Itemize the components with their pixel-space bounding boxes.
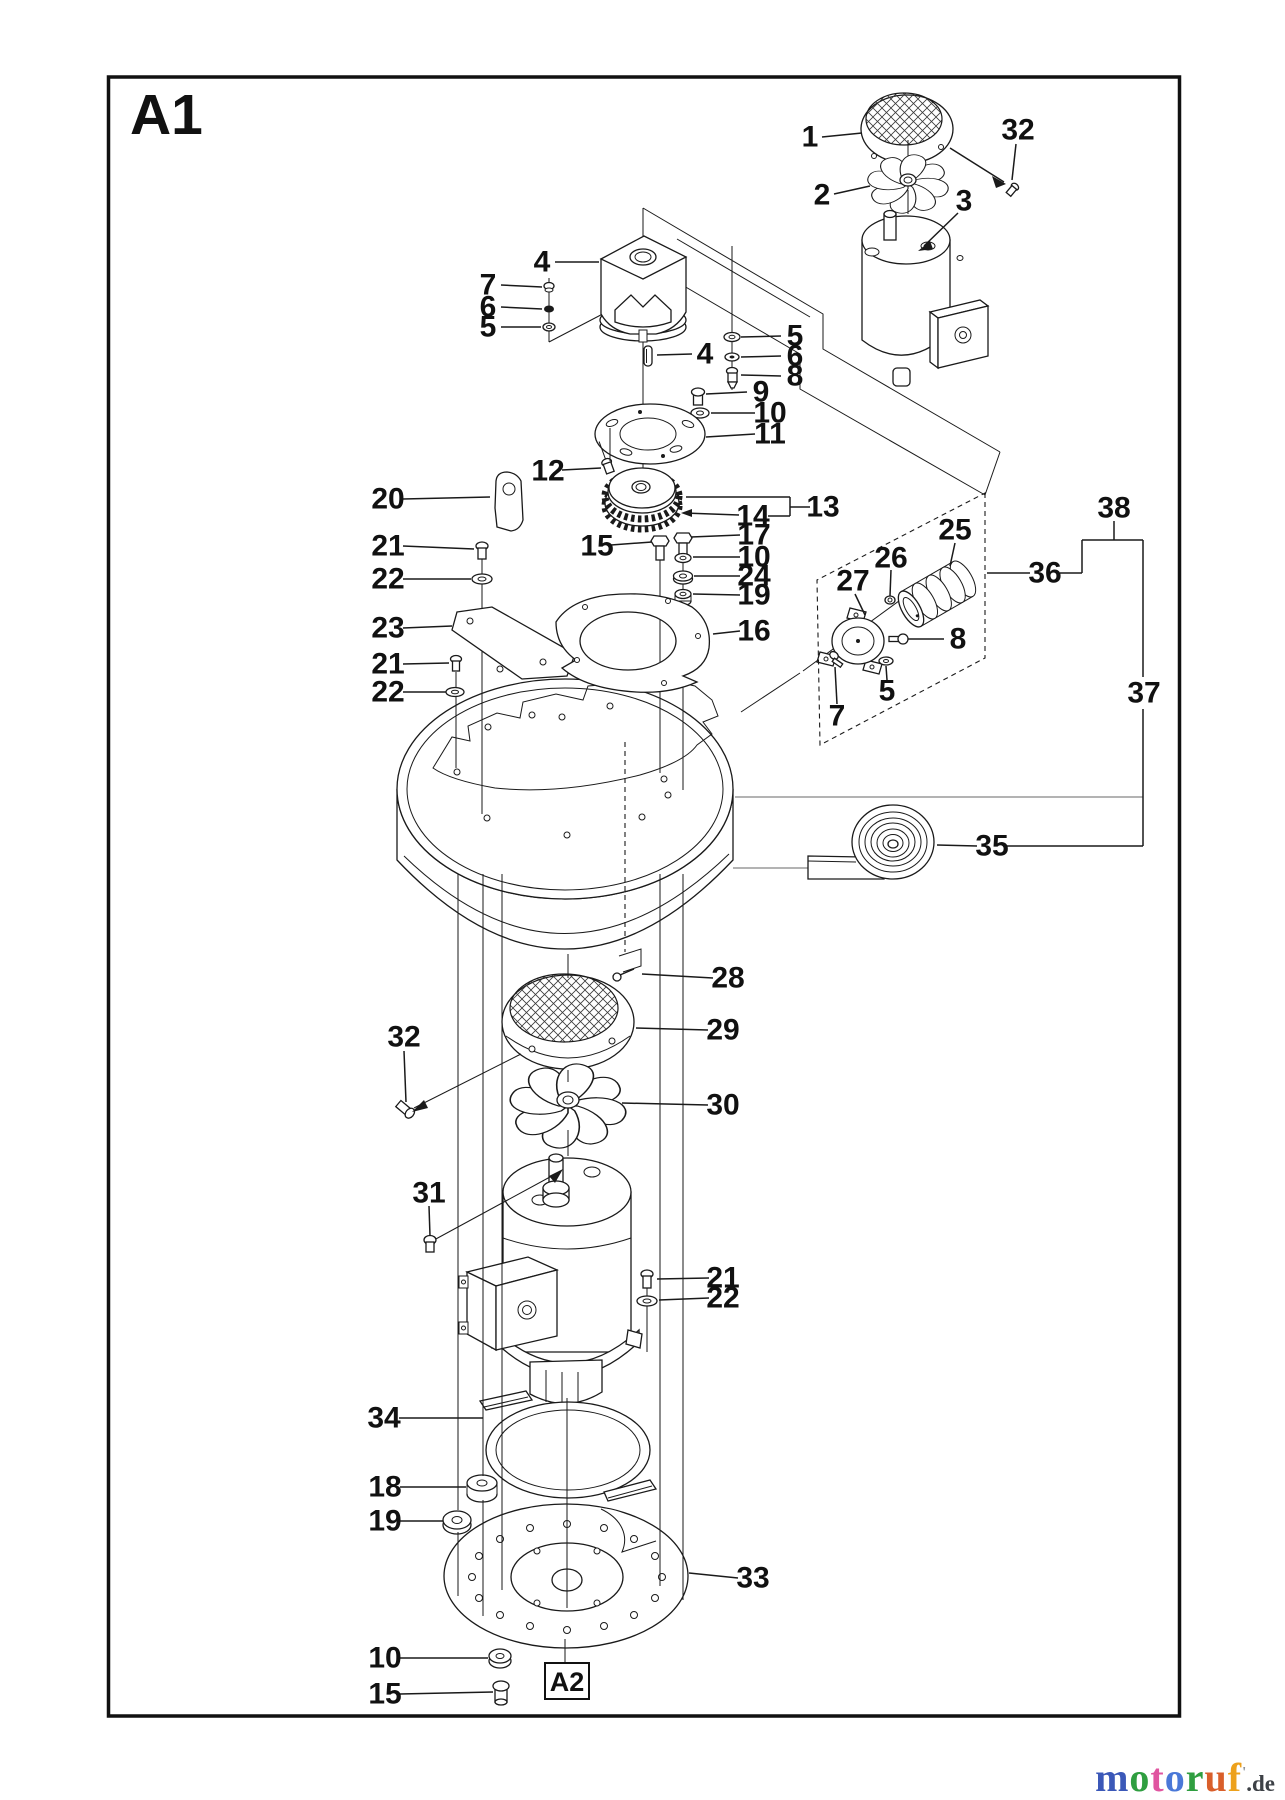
callout-27: 27 [836, 565, 869, 616]
part-guard-plate [556, 594, 709, 692]
svg-text:4: 4 [534, 246, 551, 279]
part-clutch-bracket [817, 608, 884, 674]
svg-text:5: 5 [879, 675, 896, 708]
callout-29: 29 [636, 1014, 740, 1047]
part-washer-10-bottom [489, 1649, 511, 1668]
svg-text:19: 19 [737, 579, 770, 612]
callout-16: 16 [713, 615, 771, 648]
svg-text:8: 8 [950, 623, 967, 656]
callout-15: 15 [368, 1678, 493, 1711]
callout-32: 32 [387, 1021, 420, 1103]
callout-35: 35 [937, 830, 1143, 863]
svg-text:33: 33 [736, 1562, 769, 1595]
svg-text:18: 18 [368, 1471, 401, 1504]
svg-text:35: 35 [975, 830, 1008, 863]
svg-text:22: 22 [371, 563, 404, 596]
svg-text:15: 15 [580, 530, 613, 563]
callout-26: 26 [874, 542, 907, 597]
callout-34: 34 [367, 1402, 483, 1435]
callout-1: 1 [802, 121, 862, 154]
callout-10: 10 [368, 1642, 488, 1675]
callout-4: 4 [657, 338, 714, 371]
svg-text:26: 26 [874, 542, 907, 575]
callout-22: 22 [371, 676, 446, 709]
exploded-parts-diagram: 1322347654568910111213141710241916202122… [0, 0, 1285, 1800]
svg-text:16: 16 [737, 615, 770, 648]
part-screw-9-washer-10 [691, 388, 709, 418]
callout-18: 18 [368, 1471, 466, 1504]
svg-text:2: 2 [814, 179, 831, 212]
svg-text:22: 22 [706, 1282, 739, 1315]
svg-text:7: 7 [829, 700, 846, 733]
part-support-plate [452, 607, 575, 679]
callout-11: 11 [706, 418, 786, 451]
callout-37: 37 [1127, 540, 1160, 846]
callout-23: 23 [371, 612, 452, 645]
svg-text:20: 20 [371, 483, 404, 516]
logo-letters: motoruf [1095, 1755, 1242, 1800]
part-base-plate [444, 1504, 688, 1648]
callout-22: 22 [659, 1282, 740, 1315]
svg-text:1: 1 [802, 121, 819, 154]
svg-text:13: 13 [806, 491, 839, 524]
part-lower-motor [459, 1154, 642, 1406]
motoruf-logo: motoruf'.de [1095, 1758, 1275, 1798]
svg-text:32: 32 [1001, 114, 1034, 147]
part-screw-32-top [1005, 182, 1019, 197]
detail-ref-label: A2 [550, 1667, 585, 1697]
callout-25: 25 [938, 514, 971, 567]
svg-text:37: 37 [1127, 677, 1160, 710]
svg-text:21: 21 [371, 530, 404, 563]
callout-22: 22 [371, 563, 471, 596]
svg-text:34: 34 [367, 1402, 401, 1435]
callout-12: 12 [531, 455, 601, 488]
callout-28: 28 [642, 962, 745, 995]
link-lines [733, 797, 1143, 868]
detail-ref: A2 [545, 1663, 589, 1699]
callout-5: 5 [879, 666, 896, 708]
part-spacer-18 [467, 1475, 497, 1502]
part-drive-pin [644, 346, 652, 366]
callout-33: 33 [689, 1562, 770, 1595]
svg-text:19: 19 [368, 1505, 401, 1538]
callout-21: 21 [371, 530, 474, 563]
svg-text:23: 23 [371, 612, 404, 645]
callout-31: 31 [412, 1177, 445, 1237]
part-hanger-bracket [495, 472, 523, 531]
callout-15: 15 [580, 530, 652, 563]
svg-text:25: 25 [938, 514, 971, 547]
part-upper-motor [862, 211, 988, 387]
svg-text:11: 11 [754, 418, 786, 451]
callout-38: 38 [1082, 492, 1143, 541]
callout-19: 19 [368, 1505, 443, 1538]
svg-text:22: 22 [371, 676, 404, 709]
part-screw-15-bottom [493, 1681, 509, 1705]
page: { "page": { "sheet_label": "A1", "detail… [0, 0, 1285, 1800]
callout-4: 4 [534, 246, 599, 279]
part-chain-sprocket [605, 468, 679, 529]
callout-5: 5 [480, 311, 541, 344]
svg-text:5: 5 [480, 311, 497, 344]
svg-text:12: 12 [531, 455, 564, 488]
part-clamp-ring [480, 1391, 656, 1501]
part-top-grille-cover [861, 93, 953, 163]
part-bearing-flange [595, 404, 705, 464]
callout-19: 19 [693, 579, 771, 612]
part-washer-19-lower [443, 1511, 471, 1534]
part-stop-bracket [613, 949, 641, 981]
callout-20: 20 [371, 483, 490, 516]
svg-text:15: 15 [368, 1678, 401, 1711]
svg-text:32: 32 [387, 1021, 420, 1054]
callout-2: 2 [814, 179, 870, 212]
callout-32: 32 [950, 114, 1035, 183]
callout-7: 7 [829, 667, 846, 733]
svg-text:36: 36 [1028, 557, 1061, 590]
callout-36: 36 [987, 540, 1082, 590]
svg-text:10: 10 [368, 1642, 401, 1675]
svg-text:3: 3 [956, 185, 973, 218]
svg-text:30: 30 [706, 1089, 739, 1122]
part-friction-strip [808, 805, 934, 879]
callout-8: 8 [741, 360, 803, 393]
part-lower-grille [502, 974, 634, 1069]
callout-8: 8 [908, 623, 966, 656]
logo-tld: .de [1246, 1771, 1275, 1796]
callout-30: 30 [622, 1089, 740, 1122]
svg-text:38: 38 [1097, 492, 1130, 525]
svg-text:31: 31 [412, 1177, 445, 1210]
svg-text:28: 28 [711, 962, 744, 995]
svg-text:8: 8 [787, 360, 804, 393]
svg-text:27: 27 [836, 565, 869, 598]
part-fasteners-upper-left [543, 283, 555, 332]
sheet-label: A1 [130, 83, 203, 147]
svg-text:4: 4 [697, 338, 714, 371]
svg-text:29: 29 [706, 1014, 739, 1047]
